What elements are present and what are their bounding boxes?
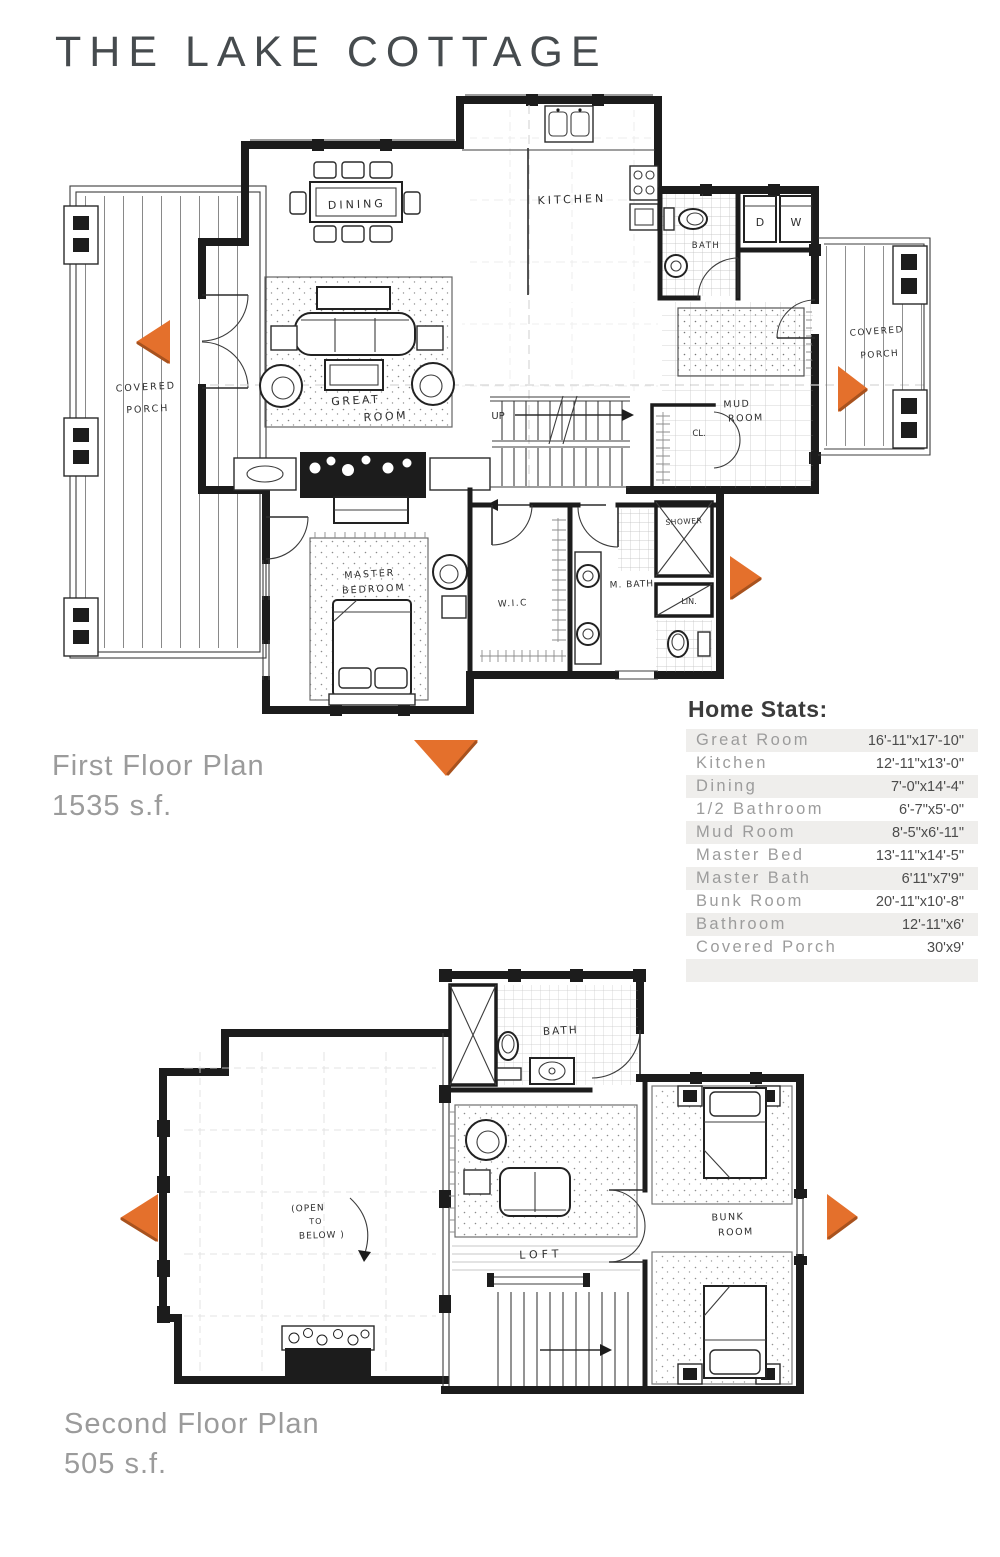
loft-area: [449, 1105, 640, 1270]
stats-row: Dining 7'-0"x14'-4": [686, 775, 978, 798]
stats-footer-band: [686, 959, 978, 982]
plan-arrow-right-icon: [730, 556, 762, 600]
half-bath-label: BATH: [692, 241, 721, 251]
stats-row-size: 7'-0"x14'-4": [891, 779, 964, 795]
stairs-down: [487, 1273, 628, 1386]
stats-row: Mud Room 8'-5"x6'-11": [686, 821, 978, 844]
first-floor-plan: COVERED PORCH DINING KITCHEN BATH D W CO…: [64, 94, 930, 776]
open-below-label-1: (OPEN: [291, 1203, 325, 1214]
stats-row-name: Bathroom: [696, 915, 787, 934]
plan-arrow-left-second-icon: [120, 1194, 158, 1242]
kitchen-sink: [545, 106, 593, 142]
chimney: [282, 1326, 374, 1380]
stats-row: Kitchen 12'-11"x13'-0": [686, 752, 978, 775]
kitchen-label: KITCHEN: [537, 192, 606, 207]
bunk-room-label-2: ROOM: [718, 1226, 754, 1238]
loft-label: LOFT: [519, 1247, 563, 1262]
washer-label: W: [791, 216, 802, 229]
armchair: [466, 1120, 506, 1160]
mud-room-label-2: ROOM: [728, 412, 764, 424]
second-floor-caption: Second Floor Plan 505 s.f.: [64, 1404, 320, 1484]
stats-row-size: 8'-5"x6'-11": [892, 825, 964, 841]
second-floor-caption-area: 505 s.f.: [64, 1444, 320, 1484]
stats-row-size: 12'-11"x6': [902, 917, 964, 933]
bunk-bed-bottom: [652, 1252, 792, 1384]
home-stats: Home Stats: Great Room 16'-11"x17'-10" K…: [686, 696, 978, 982]
porch-post: [64, 206, 98, 264]
stats-row: Bunk Room 20'-11"x10'-8": [686, 890, 978, 913]
bunk-bed-top: [652, 1086, 792, 1204]
shower-stall: [656, 502, 712, 576]
stats-row-size: 6'11"x7'9": [902, 871, 964, 887]
closet-label: CL.: [692, 429, 705, 439]
stats-row-size: 16'-11"x17'-10": [868, 733, 964, 749]
dryer-label: D: [756, 216, 764, 229]
down-stairs-arrow-icon: [600, 1344, 612, 1356]
stats-row: Great Room 16'-11"x17'-10": [686, 729, 978, 752]
stats-row: Master Bath 6'11"x7'9": [686, 867, 978, 890]
bedroom-chair: [433, 555, 467, 618]
stats-row-name: Mud Room: [696, 823, 796, 842]
stats-row: Covered Porch 30'x9': [686, 936, 978, 959]
porch-post: [893, 390, 927, 448]
stairs-up: [462, 302, 658, 511]
wic-label: W.I.C: [498, 598, 529, 610]
up-arrow-icon: [622, 409, 634, 421]
second-floor-plan: BATH (OPEN TO BELOW ) LOFT BUNK ROOM: [120, 969, 858, 1390]
pedestal-sink: [665, 255, 687, 277]
armchair: [412, 363, 454, 405]
dining-label: DINING: [328, 197, 386, 212]
stats-row-name: Master Bath: [696, 869, 811, 888]
mud-room-label-1: MUD: [723, 399, 750, 411]
page-title: THE LAKE COTTAGE: [55, 28, 608, 77]
stats-row-size: 13'-11"x14'-5": [876, 848, 964, 864]
covered-porch-left: [64, 186, 266, 658]
porch-post: [64, 418, 98, 476]
covered-porch-right: [818, 238, 930, 455]
toilet: [664, 208, 707, 230]
stats-row-size: 12'-11"x13'-0": [876, 756, 964, 772]
stats-row-size: 30'x9': [927, 940, 964, 956]
open-below-label-2: TO: [308, 1217, 322, 1226]
master-bath-label: M. BATH: [610, 579, 655, 591]
shower-label: SHOWER: [665, 516, 702, 527]
stats-row-size: 20'-11"x10'-8": [876, 894, 964, 910]
plan-arrow-right-second-icon: [827, 1194, 858, 1240]
stats-row-name: Dining: [696, 777, 757, 796]
bunk-room-label-1: BUNK: [711, 1211, 744, 1223]
great-room-label-1: GREAT: [331, 393, 381, 409]
first-floor-caption-area: 1535 s.f.: [52, 786, 265, 826]
first-floor-caption-title: First Floor Plan: [52, 746, 265, 786]
porch-post: [64, 598, 98, 656]
stats-row-size: 6'-7"x5'-0": [899, 802, 964, 818]
linen-label: LIN.: [681, 597, 696, 606]
fireplace: [234, 452, 490, 498]
great-room-label-2: ROOM: [363, 409, 408, 424]
kitchen-range: [630, 166, 658, 230]
stats-row: 1/2 Bathroom 6'-7"x5'-0": [686, 798, 978, 821]
loft-sofa: [500, 1168, 570, 1216]
plan-arrow-down-icon: [414, 740, 478, 776]
stats-row-name: Covered Porch: [696, 938, 837, 957]
stats-row: Bathroom 12'-11"x6': [686, 913, 978, 936]
armchair: [260, 365, 302, 407]
open-below-label-3: BELOW ): [299, 1230, 345, 1242]
page: COVERED PORCH DINING KITCHEN BATH D W CO…: [0, 0, 1000, 1557]
stats-row-name: Bunk Room: [696, 892, 804, 911]
bath-vanity: [530, 1058, 574, 1084]
laundry-area: [738, 196, 815, 250]
stats-row-name: Kitchen: [696, 754, 768, 773]
up-label: UP: [491, 411, 504, 422]
stats-row-name: 1/2 Bathroom: [696, 800, 824, 819]
shower-stall: [450, 985, 496, 1085]
home-stats-heading: Home Stats:: [688, 696, 978, 723]
stats-row-name: Great Room: [696, 731, 810, 750]
second-floor-caption-title: Second Floor Plan: [64, 1404, 320, 1444]
mud-room-area: [652, 300, 815, 488]
first-floor-caption: First Floor Plan 1535 s.f.: [52, 746, 265, 826]
porch-post: [893, 246, 927, 304]
toilet: [656, 620, 712, 672]
covered-porch-left-label-2: PORCH: [126, 403, 170, 416]
stats-row-name: Master Bed: [696, 846, 804, 865]
master-bedroom-area: [266, 497, 467, 705]
bed: [329, 600, 415, 705]
bath-label: BATH: [543, 1024, 579, 1038]
stats-row: Master Bed 13'-11"x14'-5": [686, 844, 978, 867]
